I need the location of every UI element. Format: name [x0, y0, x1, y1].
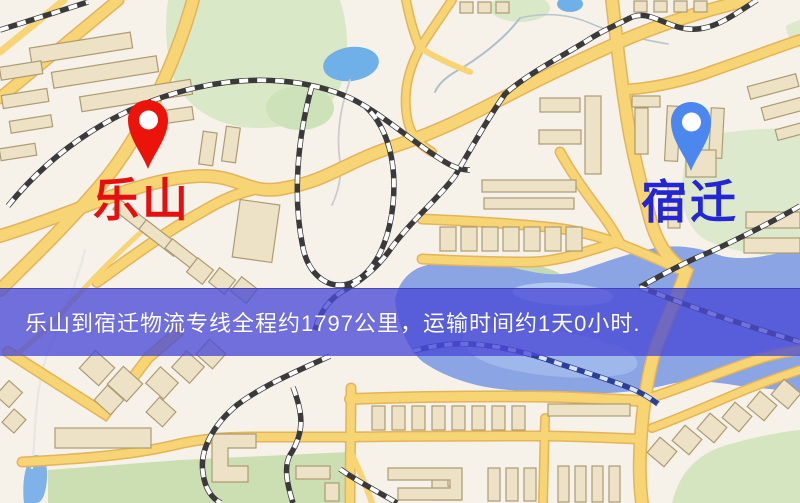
destination-pin-marker[interactable] — [667, 100, 715, 174]
blue-pin-hole — [682, 113, 701, 132]
red-pin-hole — [139, 111, 158, 130]
map-canvas[interactable]: 乐山 宿迁 乐山到宿迁物流专线全程约1797公里，运输时间约1天0小时. — [0, 0, 800, 503]
red-pin-body — [128, 100, 168, 169]
origin-city-label: 乐山 — [93, 177, 191, 223]
blue-pin-icon — [667, 100, 715, 174]
red-pin-icon — [124, 98, 172, 172]
map-graphic — [0, 0, 800, 503]
blue-pin-body — [671, 102, 711, 171]
destination-city-label: 宿迁 — [641, 179, 739, 225]
route-info-text: 乐山到宿迁物流专线全程约1797公里，运输时间约1天0小时. — [0, 306, 641, 338]
route-info-banner: 乐山到宿迁物流专线全程约1797公里，运输时间约1天0小时. — [0, 288, 800, 356]
origin-pin-marker[interactable] — [124, 98, 172, 172]
